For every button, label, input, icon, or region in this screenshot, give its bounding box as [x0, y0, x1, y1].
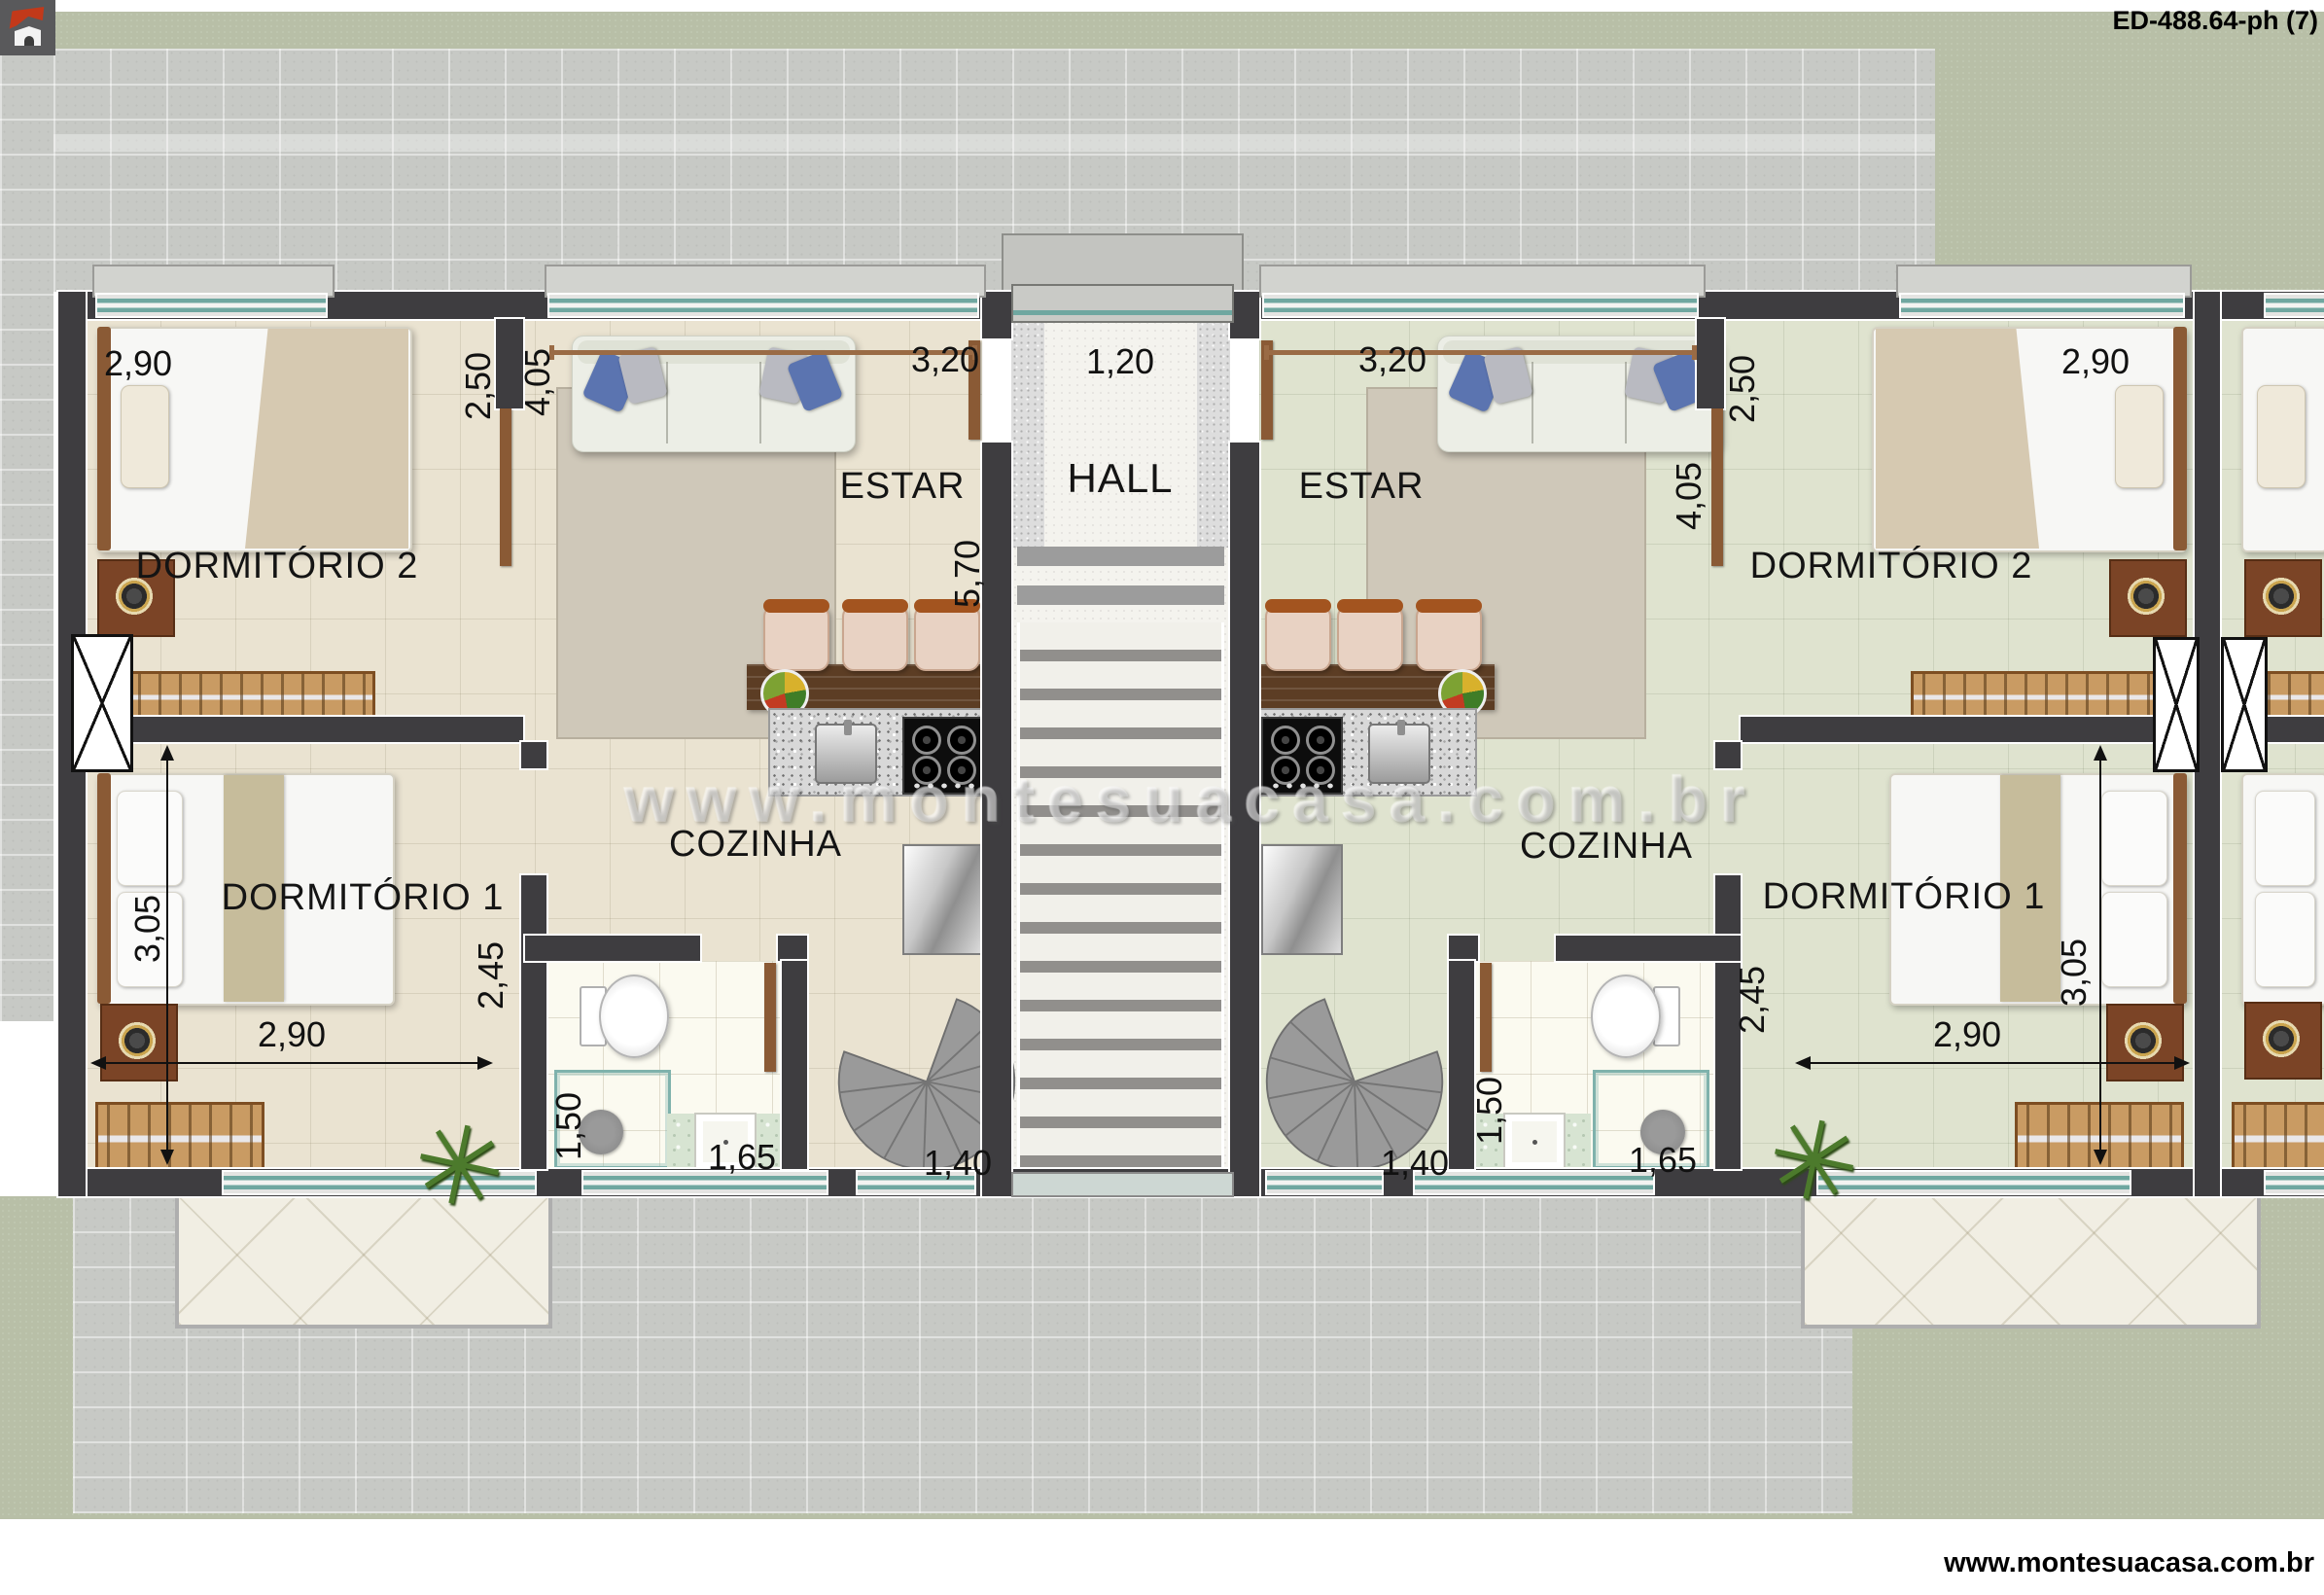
vent-shaft-left — [71, 634, 133, 772]
third-dorm2-bed — [2241, 327, 2324, 552]
dim-dorm1-depth-right: 3,05 — [2057, 939, 2092, 1007]
bed-headboard — [2173, 327, 2187, 550]
stair-step — [1017, 547, 1224, 566]
room-label-dormitorio2-left: DORMITÓRIO 2 — [136, 548, 419, 585]
right-bar-stool — [1416, 605, 1482, 671]
window-stair-right — [1267, 1172, 1382, 1193]
hall-wall-right-upper — [1230, 292, 1259, 338]
footer-url: www.montesuacasa.com.br — [1944, 1547, 2314, 1579]
right-refrigerator — [1261, 844, 1343, 955]
dim-estar-depth-right: 4,05 — [1672, 462, 1707, 530]
right-dorm2-bed — [1872, 327, 2187, 552]
right-bar-stool — [1337, 605, 1403, 671]
vent-shaft-party-b — [2221, 637, 2268, 772]
dim-dorm1-width-left: 2,90 — [258, 1017, 326, 1052]
lamp — [115, 1018, 159, 1063]
window-sill — [545, 265, 986, 298]
window-estar-left — [549, 295, 977, 316]
faucet — [844, 720, 852, 735]
lamp — [2259, 1016, 2304, 1061]
sofa-seam — [1625, 362, 1627, 443]
right-toilet-bowl — [1591, 975, 1661, 1058]
dim-bath-length-left: 1,65 — [708, 1140, 776, 1175]
burner — [1271, 726, 1300, 755]
window-sill — [1896, 265, 2192, 298]
sofa-seam — [666, 362, 668, 443]
pavement-left-walkway — [0, 49, 53, 1021]
dim-bath-width-left: 1,50 — [551, 1092, 586, 1160]
stair-step — [1017, 585, 1224, 605]
dim-dorm2-width-right: 2,90 — [2061, 344, 2130, 379]
left-bath-wall-top-b — [778, 936, 807, 961]
dim-arrow-dorm1-right — [2099, 747, 2101, 1163]
right-dorm1-nightstand — [2106, 1004, 2184, 1081]
monte-sua-casa-logo-icon — [0, 0, 55, 55]
left-dorm1-wall-upper — [521, 742, 546, 768]
right-bath-wall-top-a — [1449, 936, 1478, 961]
window-bath-left — [583, 1172, 827, 1193]
bed-pillow — [2257, 385, 2306, 488]
lamp — [2124, 574, 2168, 619]
room-label-dormitorio2-right: DORMITÓRIO 2 — [1750, 548, 2033, 585]
dim-arrow-dorm1w-right — [1797, 1062, 2188, 1064]
window-dorm2-left — [97, 295, 326, 316]
dim-dorm2-width-left: 2,90 — [104, 346, 172, 381]
left-dorm1-wall — [521, 875, 546, 1169]
room-label-estar-left: ESTAR — [840, 468, 966, 505]
sofa-seam — [759, 362, 761, 443]
dim-dorm1-depth-left: 3,05 — [130, 895, 165, 963]
dim-estar-depth-left: 4,05 — [520, 348, 555, 416]
room-label-hall: HALL — [1067, 458, 1173, 499]
hall-floor-border-right — [1197, 319, 1230, 548]
stool-back — [763, 599, 829, 613]
right-dorm2-partition — [1697, 319, 1724, 408]
stool-back — [1337, 599, 1403, 613]
window-dorm2-right — [1901, 295, 2183, 316]
center-watermark: www.montesuacasa.com.br — [624, 762, 1758, 836]
room-label-dormitorio1-left: DORMITÓRIO 1 — [222, 879, 505, 916]
dim-hall-width: 1,20 — [1086, 344, 1154, 379]
bed-pillow — [121, 385, 169, 488]
bed-pillow — [2101, 892, 2167, 987]
right-bedroom-divider — [1741, 717, 2195, 742]
logo-roof — [6, 3, 48, 28]
hall-staircase — [1017, 622, 1224, 1169]
left-bar-stool — [842, 605, 908, 671]
dim-bath-width-right: 1,50 — [1472, 1077, 1507, 1145]
left-wardrobe-bottom — [95, 1102, 264, 1176]
left-bar-stool — [763, 605, 829, 671]
dim-stair-width-right: 1,40 — [1381, 1146, 1449, 1181]
right-dorm2-nightstand — [2109, 559, 2187, 637]
stool-back — [842, 599, 908, 613]
dim-corridor-left: 2,45 — [474, 941, 509, 1010]
burner — [947, 726, 976, 755]
right-bath-sink — [1505, 1115, 1564, 1169]
terrace-door-right — [1818, 1172, 2130, 1193]
floor-plan-canvas: ✳ ✳ DORMITÓRIO 2 DORMITÓRIO 2 DORMITÓRIO… — [0, 0, 2324, 1595]
third-nightstand — [2244, 559, 2322, 637]
dim-unit-depth-left: 5,70 — [950, 540, 985, 608]
burner — [912, 726, 941, 755]
right-dorm2-door — [1711, 408, 1723, 566]
dim-arrow-dorm1w-left — [92, 1062, 491, 1064]
dim-dorm2-depth-left: 2,50 — [461, 352, 496, 420]
bed-blanket — [1876, 329, 2039, 549]
sofa-seam — [1532, 362, 1533, 443]
right-closet-top — [1911, 671, 2160, 724]
left-closet-top — [126, 671, 375, 724]
door-glass-line — [1013, 310, 1232, 315]
left-refrigerator — [902, 844, 984, 955]
hall-wall-left-upper — [982, 292, 1011, 338]
window-third-unit — [2266, 295, 2324, 316]
bed-headboard — [97, 773, 111, 1004]
bed-pillow — [2115, 385, 2164, 488]
stool-back — [1416, 599, 1482, 613]
lamp — [2121, 1018, 2166, 1063]
room-label-dormitorio1-right: DORMITÓRIO 1 — [1763, 878, 2046, 915]
dim-corridor-right: 2,45 — [1735, 966, 1770, 1034]
bed-pillow — [2255, 791, 2315, 886]
right-terrace — [1801, 1196, 2261, 1329]
left-bar-stool — [914, 605, 980, 671]
logo-arch — [24, 36, 34, 46]
window-sill — [92, 265, 335, 298]
hall-entry-door — [1011, 284, 1234, 323]
dim-estar-width-right: 3,20 — [1358, 342, 1426, 377]
left-bedroom-divider — [86, 717, 523, 742]
room-label-estar-right: ESTAR — [1299, 468, 1425, 505]
third-nightstand-2 — [2244, 1002, 2322, 1080]
bed-pillow — [2255, 892, 2315, 987]
third-dorm1-bed — [2241, 773, 2324, 1006]
plan-code: ED-488.64-ph (7) — [2112, 6, 2318, 36]
vent-shaft-party-a — [2153, 637, 2200, 772]
bed-pillow — [117, 791, 183, 886]
stool-back — [1265, 599, 1331, 613]
dim-dorm2-depth-right: 2,50 — [1725, 355, 1760, 423]
left-terrace — [175, 1196, 552, 1329]
dim-dorm1-width-right: 2,90 — [1933, 1017, 2001, 1052]
hall-floor-border-left — [1011, 319, 1044, 548]
dim-estar-width-left: 3,20 — [911, 342, 979, 377]
dim-bath-length-right: 1,65 — [1629, 1143, 1697, 1178]
pavement-top-walkway — [53, 49, 1935, 292]
terrace-door-third — [2266, 1172, 2324, 1193]
dim-line-estar-right — [1264, 350, 1697, 355]
third-wardrobe-bottom — [2232, 1102, 2324, 1176]
pavement-curb — [53, 134, 1935, 152]
right-bath-door — [1480, 963, 1492, 1072]
burner — [1306, 726, 1335, 755]
right-bar-stool — [1265, 605, 1331, 671]
bed-headboard — [2173, 773, 2187, 1004]
window-estar-right — [1264, 295, 1697, 316]
left-toilet-bowl — [599, 975, 669, 1058]
faucet — [1397, 720, 1405, 735]
right-bath-wall-top-b — [1556, 936, 1741, 961]
bed-blanket — [245, 329, 408, 549]
left-bath-door — [764, 963, 776, 1072]
window-sill — [1259, 265, 1706, 298]
left-bath-wall-right — [782, 961, 807, 1169]
lamp — [2259, 574, 2304, 619]
hall-bottom-exit — [1011, 1172, 1234, 1197]
dim-stair-width-left: 1,40 — [924, 1146, 992, 1181]
drain-dot — [1532, 1140, 1537, 1145]
left-bath-wall-top-a — [525, 936, 700, 961]
window-bath-right — [1415, 1172, 1653, 1193]
bed-pillow — [2101, 791, 2167, 886]
left-dorm2-door — [500, 408, 511, 566]
